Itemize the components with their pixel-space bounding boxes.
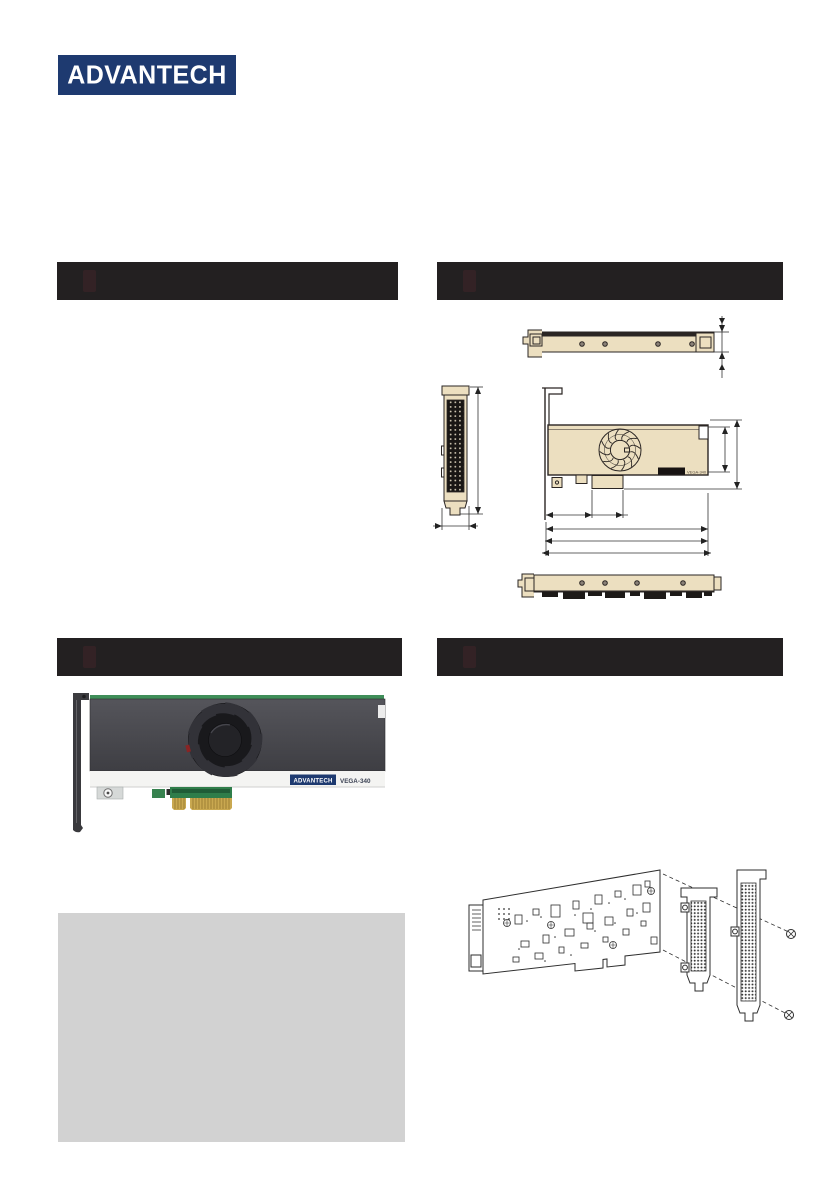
board-front-view: VEGA-340 (542, 388, 742, 556)
datasheet-page: ADVANTECH (0, 0, 839, 1191)
section-header-bar-middle-left (57, 638, 402, 676)
top-side-view (523, 316, 729, 378)
product-photo: ADVANTECH VEGA-340 (60, 688, 405, 833)
bottom-side-view (518, 574, 721, 599)
section-icon (463, 270, 476, 292)
screw-icon (785, 1011, 794, 1020)
low-profile-bracket (681, 888, 717, 991)
section-header-bar-middle-right (437, 638, 783, 676)
assembly-guide-line (663, 950, 789, 1015)
section-header-bar-top-right (437, 262, 783, 300)
drawing-model-label: VEGA-340 (687, 470, 707, 475)
screw-icon (787, 930, 796, 939)
assembly-figure (455, 857, 805, 1037)
dimensions-figure: VEGA-340 (430, 308, 820, 608)
bracket-front-view (433, 386, 483, 530)
pcie-bracket (73, 693, 89, 832)
section-icon (83, 646, 96, 668)
full-height-bracket (731, 870, 766, 1021)
pcb-back-side (469, 870, 660, 974)
advantech-logo: ADVANTECH (58, 55, 236, 95)
section-icon (83, 270, 96, 292)
section-header-bar-top-left (57, 262, 398, 300)
model-label-plate (658, 468, 685, 475)
section-icon (463, 646, 476, 668)
model-label-text: VEGA-340 (340, 778, 371, 785)
placeholder-box (58, 913, 405, 1142)
advantech-logo-text: ADVANTECH (67, 60, 227, 90)
gold-fingers (172, 798, 232, 810)
brand-label-text: ADVANTECH (293, 779, 332, 785)
pcb-bottom-edge (97, 787, 232, 810)
